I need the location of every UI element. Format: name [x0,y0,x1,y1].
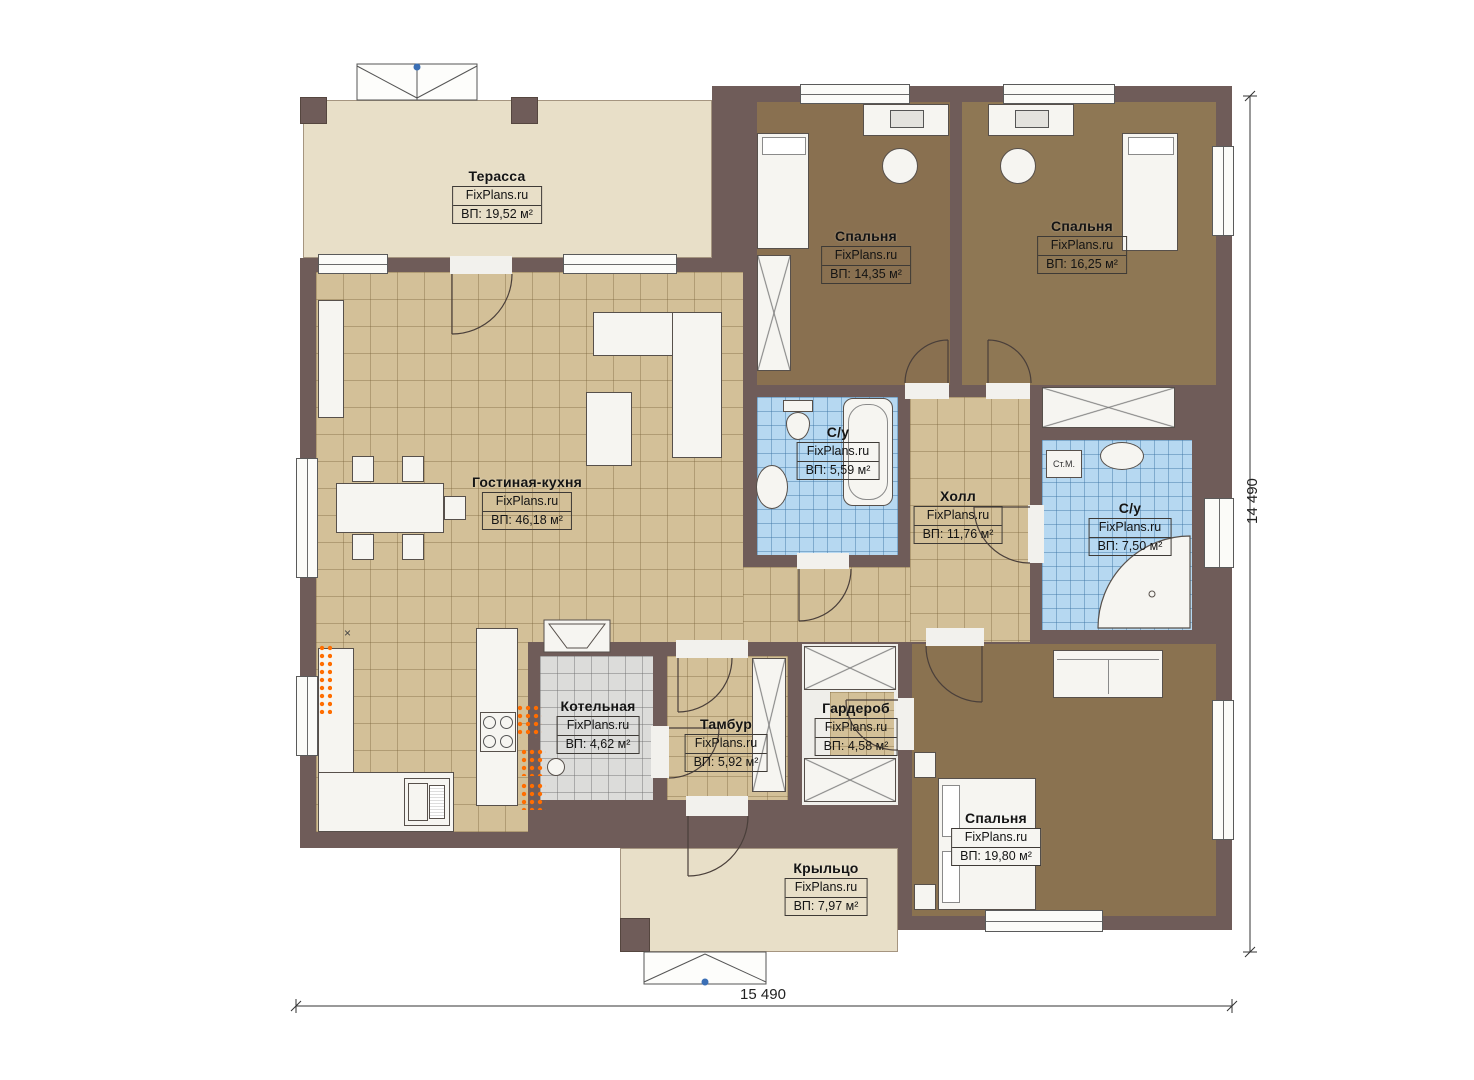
radiator [520,782,546,810]
watermark: FixPlans.ru [816,719,897,738]
tall-cabinet [318,300,344,418]
burner [500,735,513,748]
door-bedroom3 [926,628,984,646]
nightstand [914,752,936,778]
room-label-bedroom3: Спальня FixPlans.ru ВП: 19,80 м² [951,810,1041,866]
watermark: FixPlans.ru [453,187,541,206]
corridor-floor [743,567,910,642]
dining-chair [352,456,374,482]
bed [757,133,809,249]
room-label-bathroom2: С/у FixPlans.ru ВП: 7,50 м² [1089,500,1172,556]
desk-monitor [1015,110,1049,128]
coffee-table [586,392,632,466]
room-name: С/у [1119,500,1141,516]
dining-chair [444,496,466,520]
room-area: ВП: 14,35 м² [822,266,910,284]
room-label-hall: Холл FixPlans.ru ВП: 11,76 м² [914,488,1003,544]
radiator [318,644,332,714]
door-vestibule-porch [686,796,748,816]
bathroom-sink [1100,442,1144,470]
sink-basin [408,783,428,821]
room-label-bedroom1: Спальня FixPlans.ru ВП: 14,35 м² [821,228,911,284]
room-area: ВП: 16,25 м² [1038,256,1126,274]
room-area: ВП: 46,18 м² [483,512,571,530]
room-label-porch: Крыльцо FixPlans.ru ВП: 7,97 м² [785,860,868,916]
door-bathroom2 [1028,505,1044,563]
room-area: ВП: 7,50 м² [1090,538,1171,556]
sofa-seam [1108,659,1109,694]
room-area: ВП: 11,76 м² [915,526,1002,544]
watermark: FixPlans.ru [915,507,1002,526]
wardrobe-cabinet [757,255,791,371]
window [1204,498,1234,568]
room-info-box: FixPlans.ru ВП: 14,35 м² [821,246,911,284]
room-name: Спальня [1051,218,1113,234]
dining-chair [402,456,424,482]
wardrobe-unit [804,758,896,802]
room-info-box: FixPlans.ru ВП: 16,25 м² [1037,236,1127,274]
pillow [1128,137,1174,155]
door-vestibule-north [676,640,748,658]
radiator [520,748,546,776]
sink-drainer [429,785,445,819]
window [1003,84,1115,104]
room-label-terrace: Терасса FixPlans.ru ВП: 19,52 м² [452,168,542,224]
window [318,254,388,274]
sofa [1053,650,1163,698]
window [800,84,910,104]
dining-chair [402,534,424,560]
sofa-backline [1057,659,1159,660]
dining-table [336,483,444,533]
room-info-box: FixPlans.ru ВП: 11,76 м² [914,506,1003,544]
room-name: Гардероб [822,700,890,716]
window [296,458,318,578]
room-name: Спальня [965,810,1027,826]
boiler-unit [547,758,565,776]
kitchen-sink [404,778,450,826]
room-name: Крыльцо [793,860,858,876]
door-bedroom1 [905,383,949,399]
room-label-bedroom2: Спальня FixPlans.ru ВП: 16,25 м² [1037,218,1127,274]
window [296,676,318,756]
bed [1122,133,1178,251]
room-info-box: FixPlans.ru ВП: 19,80 м² [951,828,1041,866]
room-name: Гостиная-кухня [472,474,582,490]
dimension-height: 14 490 [1244,478,1261,524]
terrace-column [511,97,538,124]
desk [863,104,949,136]
wardrobe-unit [804,646,896,690]
burner [483,735,496,748]
door-terrace-living [450,256,512,274]
roof-gable-bottom [644,952,766,986]
pillow [762,137,806,155]
room-name: С/у [827,424,849,440]
porch-column [620,918,650,952]
room-name: Котельная [560,698,635,714]
floor-plan: × Ст.М. [0,0,1474,1080]
toilet-tank [783,400,813,412]
room-label-boiler: Котельная FixPlans.ru ВП: 4,62 м² [557,698,640,754]
room-name: Тамбур [700,716,752,732]
room-label-living-kitchen: Гостиная-кухня FixPlans.ru ВП: 46,18 м² [472,474,582,530]
room-label-vestibule: Тамбур FixPlans.ru ВП: 5,92 м² [685,716,768,772]
room-area: ВП: 7,97 м² [786,898,867,916]
room-area: ВП: 19,52 м² [453,206,541,224]
room-area: ВП: 19,80 м² [952,848,1040,866]
office-chair [882,148,918,184]
burner [483,716,496,729]
door-bathroom1 [797,553,849,569]
room-info-box: FixPlans.ru ВП: 46,18 м² [482,492,572,530]
door-bedroom2 [986,383,1030,399]
room-area: ВП: 4,58 м² [816,738,897,756]
desk-monitor [890,110,924,128]
dining-chair [352,534,374,560]
room-area: ВП: 5,59 м² [798,462,879,480]
watermark: FixPlans.ru [1090,519,1171,538]
nightstand [914,884,936,910]
watermark: FixPlans.ru [798,443,879,462]
washing-machine-label: Ст.М. [1053,459,1075,469]
window [563,254,677,274]
burner [500,716,513,729]
watermark: FixPlans.ru [952,829,1040,848]
watermark: FixPlans.ru [1038,237,1126,256]
room-info-box: FixPlans.ru ВП: 5,59 м² [797,442,880,480]
room-area: ВП: 4,62 м² [558,736,639,754]
room-label-bathroom1: С/у FixPlans.ru ВП: 5,59 м² [797,424,880,480]
desk [988,104,1074,136]
room-info-box: FixPlans.ru ВП: 5,92 м² [685,734,768,772]
stove [480,712,516,752]
room-info-box: FixPlans.ru ВП: 7,97 м² [785,878,868,916]
room-area: ВП: 5,92 м² [686,754,767,772]
door-boiler-vestibule [651,726,669,778]
watermark: FixPlans.ru [558,717,639,736]
room-name: Терасса [469,168,526,184]
window [1212,146,1234,236]
room-name: Спальня [835,228,897,244]
room-label-wardrobe: Гардероб FixPlans.ru ВП: 4,58 м² [815,700,898,756]
room-info-box: FixPlans.ru ВП: 19,52 м² [452,186,542,224]
radiator [516,704,542,738]
washing-machine: Ст.М. [1046,450,1082,478]
terrace-column [300,97,327,124]
room-name: Холл [940,488,976,504]
office-chair [1000,148,1036,184]
bathroom-sink [756,465,788,509]
utility-x-marker: × [344,626,351,640]
room-info-box: FixPlans.ru ВП: 7,50 м² [1089,518,1172,556]
room-info-box: FixPlans.ru ВП: 4,62 м² [557,716,640,754]
room-info-box: FixPlans.ru ВП: 4,58 м² [815,718,898,756]
watermark: FixPlans.ru [686,735,767,754]
watermark: FixPlans.ru [786,879,867,898]
window [985,910,1103,932]
sofa-arm [672,312,722,458]
window [1212,700,1234,840]
dimension-width: 15 490 [740,986,786,1003]
watermark: FixPlans.ru [822,247,910,266]
roof-gable-top [357,64,477,101]
door-wardrobe-bedroom3 [896,698,914,750]
watermark: FixPlans.ru [483,493,571,512]
built-in-closet [1042,387,1175,428]
